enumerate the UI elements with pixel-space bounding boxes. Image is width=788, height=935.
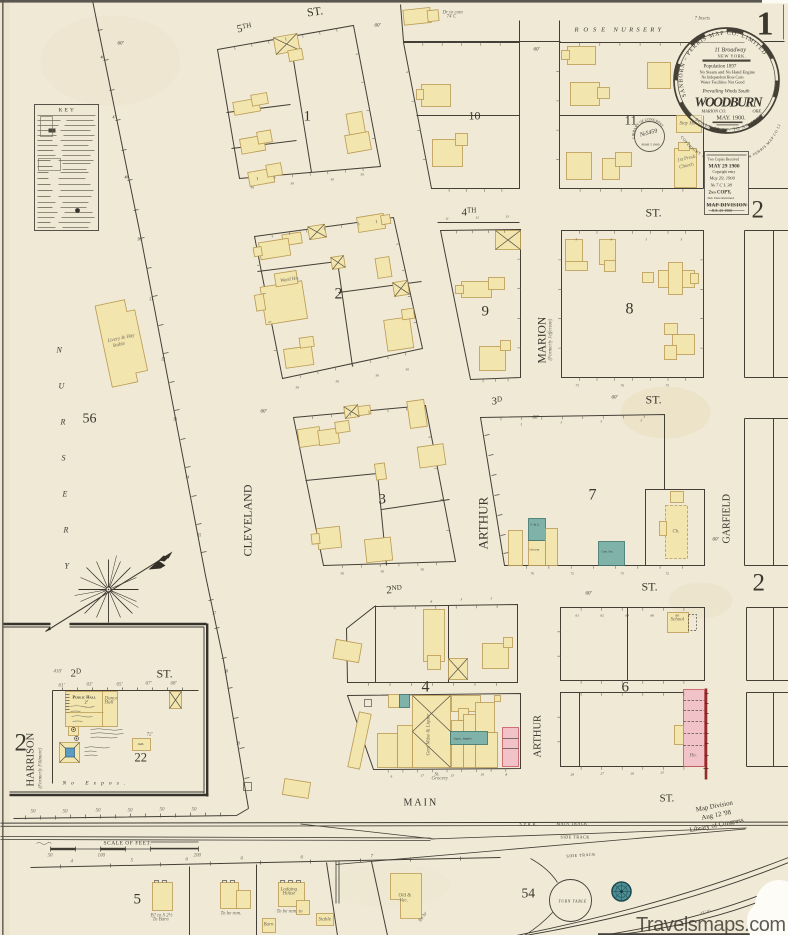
svg-text:5: 5	[491, 597, 493, 601]
svg-text:9: 9	[482, 304, 490, 320]
svg-text:5: 5	[646, 238, 648, 242]
svg-text:SCALE OF FEET.: SCALE OF FEET.	[104, 841, 152, 847]
svg-text:No Expos.: No Expos.	[62, 781, 131, 787]
svg-text:410': 410'	[54, 670, 64, 675]
svg-text:65': 65'	[117, 683, 124, 688]
svg-text:ST.: ST.	[157, 667, 173, 681]
svg-text:13: 13	[506, 215, 510, 219]
svg-text:50: 50	[48, 854, 54, 859]
svg-text:KEY: KEY	[59, 108, 76, 114]
svg-text:12: 12	[476, 216, 480, 220]
svg-text:MARION CO.: MARION CO.	[701, 109, 727, 114]
svg-text:63': 63'	[87, 683, 94, 688]
svg-text:HARRISON: HARRISON	[26, 732, 37, 786]
svg-text:Gen. Sto.: Gen. Sto.	[602, 550, 614, 554]
svg-text:4: 4	[422, 679, 430, 696]
svg-text:60': 60'	[713, 538, 720, 543]
svg-text:MAIN: MAIN	[404, 798, 439, 809]
svg-text:Vac.: Vac.	[400, 899, 408, 904]
svg-text:53: 53	[174, 418, 178, 422]
svg-text:50: 50	[63, 810, 69, 815]
svg-text:55: 55	[198, 534, 202, 538]
svg-text:56: 56	[83, 412, 97, 427]
svg-text:67': 67'	[146, 682, 153, 687]
svg-text:ST.: ST.	[646, 206, 662, 220]
svg-text:50: 50	[376, 374, 380, 378]
svg-text:House: House	[282, 892, 297, 897]
svg-text:2: 2	[752, 197, 765, 224]
svg-text:No Steam and No Hand Engine: No Steam and No Hand Engine	[700, 70, 756, 75]
svg-text:50: 50	[296, 386, 300, 390]
svg-text:№ 7 C L 38: № 7 C L 38	[710, 183, 733, 188]
svg-text:75: 75	[576, 384, 580, 388]
svg-text:54: 54	[522, 886, 536, 901]
svg-text:(Formerly Jefferson): (Formerly Jefferson)	[549, 318, 554, 360]
svg-text:50: 50	[160, 808, 166, 813]
svg-text:50: 50	[96, 809, 102, 814]
svg-text:N: N	[56, 346, 63, 355]
svg-text:Genl Mdse & Liquor: Genl Mdse & Liquor	[427, 714, 432, 756]
svg-text:(Formerly Fillmore): (Formerly Fillmore)	[39, 747, 44, 788]
svg-text:5: 5	[521, 423, 523, 427]
svg-text:60': 60'	[375, 24, 382, 29]
svg-text:R: R	[63, 526, 69, 535]
svg-text:75: 75	[666, 384, 670, 388]
svg-text:68': 68'	[171, 682, 178, 687]
svg-text:1: 1	[304, 109, 312, 125]
svg-text:Grocery: Grocery	[432, 777, 449, 782]
svg-text:50: 50	[192, 808, 198, 813]
svg-text:S.P.R.R.: S.P.R.R.	[520, 822, 538, 827]
svg-text:7 Insets: 7 Insets	[695, 17, 710, 22]
svg-text:72: 72	[571, 572, 575, 576]
svg-text:52: 52	[162, 358, 166, 362]
svg-text:60': 60'	[533, 416, 540, 421]
svg-text:ARTHUR: ARTHUR	[533, 715, 544, 758]
svg-text:75: 75	[621, 572, 625, 576]
svg-text:58: 58	[225, 670, 229, 674]
svg-text:1: 1	[757, 6, 774, 43]
svg-text:25: 25	[661, 771, 665, 775]
svg-text:ARTHUR: ARTHUR	[476, 497, 491, 550]
svg-text:11: 11	[446, 217, 449, 221]
svg-text:Ch.: Ch.	[673, 530, 680, 535]
svg-text:63: 63	[626, 614, 630, 618]
svg-text:Stable: Stable	[319, 918, 332, 923]
svg-text:50: 50	[31, 810, 37, 815]
svg-text:50: 50	[331, 178, 335, 182]
svg-text:MAR 5 1900: MAR 5 1900	[642, 143, 660, 147]
svg-text:Copyright entry: Copyright entry	[713, 170, 736, 174]
svg-text:60': 60'	[534, 48, 541, 53]
svg-text:9: 9	[391, 775, 393, 779]
svg-text:10: 10	[469, 109, 481, 123]
svg-text:E: E	[62, 490, 68, 499]
svg-text:Grocery: Grocery	[530, 548, 540, 552]
svg-text:3: 3	[379, 492, 387, 508]
svg-text:TURN TABLE: TURN TABLE	[559, 900, 588, 904]
svg-text:8: 8	[506, 773, 508, 777]
svg-text:50: 50	[361, 173, 365, 177]
svg-text:To Barn: To Barn	[153, 918, 170, 923]
svg-text:To be rem.: To be rem.	[221, 912, 242, 917]
svg-text:72': 72'	[147, 733, 154, 738]
svg-text:SIDE TRACK: SIDE TRACK	[561, 835, 590, 840]
svg-text:NEW YORK.: NEW YORK.	[718, 54, 747, 59]
svg-text:School: School	[671, 618, 685, 623]
svg-text:R: R	[60, 418, 66, 427]
svg-text:48: 48	[125, 176, 129, 180]
svg-text:50: 50	[291, 182, 295, 186]
svg-text:To be rem. to: To be rem. to	[277, 910, 304, 915]
svg-text:57: 57	[213, 612, 217, 616]
svg-text:60': 60'	[118, 42, 125, 47]
svg-text:50: 50	[421, 568, 425, 572]
svg-text:66: 66	[676, 614, 680, 618]
svg-text:5: 5	[681, 238, 683, 242]
svg-text:50: 50	[341, 572, 345, 576]
svg-text:Two Copies Received: Two Copies Received	[708, 158, 740, 162]
svg-text:6: 6	[622, 680, 630, 696]
svg-text:72: 72	[666, 572, 670, 576]
svg-text:F. & G.: F. & G.	[531, 523, 541, 527]
svg-text:16: 16	[481, 773, 485, 777]
svg-text:5: 5	[561, 421, 563, 425]
svg-text:3: 3	[461, 598, 463, 602]
svg-text:59: 59	[237, 742, 241, 746]
svg-text:28: 28	[571, 773, 575, 777]
svg-text:ST.: ST.	[306, 3, 324, 19]
svg-text:70: 70	[531, 572, 535, 576]
svg-text:ST.: ST.	[646, 393, 662, 407]
svg-text:17: 17	[421, 774, 425, 778]
svg-text:26: 26	[631, 772, 635, 776]
svg-text:22: 22	[135, 751, 148, 765]
svg-text:50: 50	[138, 238, 142, 242]
svg-text:Ho.: Ho.	[689, 754, 697, 759]
svg-text:5: 5	[611, 238, 613, 242]
svg-text:5: 5	[601, 420, 603, 424]
svg-text:74 C: 74 C	[447, 15, 457, 20]
svg-text:60': 60'	[261, 410, 268, 415]
svg-text:R O S E: R O S E	[574, 27, 607, 34]
svg-text:MAY. 1900.: MAY. 1900.	[717, 116, 747, 122]
svg-text:N U R S E R Y: N U R S E R Y	[613, 27, 663, 34]
svg-text:5: 5	[576, 238, 578, 242]
svg-text:27: 27	[601, 772, 605, 776]
svg-text:8: 8	[626, 301, 634, 318]
svg-text:Travelsmaps.com: Travelsmaps.com	[636, 914, 786, 935]
svg-text:MAY 29 1900: MAY 29 1900	[709, 164, 740, 170]
svg-text:51: 51	[150, 298, 154, 302]
svg-text:7: 7	[589, 487, 597, 504]
svg-text:200: 200	[194, 854, 202, 859]
svg-text:61': 61'	[59, 684, 66, 689]
svg-text:5: 5	[134, 892, 142, 908]
svg-text:60': 60'	[586, 592, 593, 597]
svg-text:8: 8	[431, 600, 433, 604]
svg-text:ST.: ST.	[660, 793, 675, 805]
svg-text:50: 50	[406, 368, 410, 372]
svg-text:ST.: ST.	[642, 580, 658, 594]
svg-text:2: 2	[753, 570, 766, 597]
svg-text:MAIN TRACK: MAIN TRACK	[557, 821, 588, 826]
svg-text:62: 62	[601, 614, 605, 618]
svg-text:2: 2	[335, 286, 343, 303]
svg-text:50: 50	[251, 186, 255, 190]
svg-text:WOODBURN: WOODBURN	[695, 95, 764, 110]
svg-text:46: 46	[101, 56, 105, 60]
svg-text:Hall: Hall	[104, 701, 115, 706]
svg-text:5: 5	[641, 419, 643, 423]
svg-text:60': 60'	[612, 396, 619, 401]
svg-text:61: 61	[576, 614, 580, 618]
svg-text:100: 100	[98, 854, 106, 859]
svg-text:50: 50	[381, 570, 385, 574]
svg-text:54: 54	[186, 476, 190, 480]
svg-text:GARFIELD: GARFIELD	[722, 494, 733, 543]
svg-text:S: S	[62, 454, 66, 463]
svg-text:50: 50	[128, 809, 134, 814]
svg-text:Del. Date Returned: Del. Date Returned	[708, 196, 735, 200]
svg-text:70: 70	[621, 384, 625, 388]
svg-text:Barn: Barn	[264, 923, 275, 928]
svg-text:Water Facilities Not Good: Water Facilities Not Good	[701, 80, 746, 85]
svg-text:66: 66	[651, 614, 655, 618]
svg-text:MARION: MARION	[537, 316, 549, 363]
svg-text:47: 47	[113, 116, 117, 120]
svg-text:JAIL: JAIL	[138, 742, 145, 746]
svg-text:15: 15	[451, 774, 455, 778]
svg-text:Agric. Implts: Agric. Implts	[454, 737, 473, 741]
svg-text:50: 50	[336, 380, 340, 384]
svg-text:CLEVELAND: CLEVELAND	[241, 484, 255, 556]
